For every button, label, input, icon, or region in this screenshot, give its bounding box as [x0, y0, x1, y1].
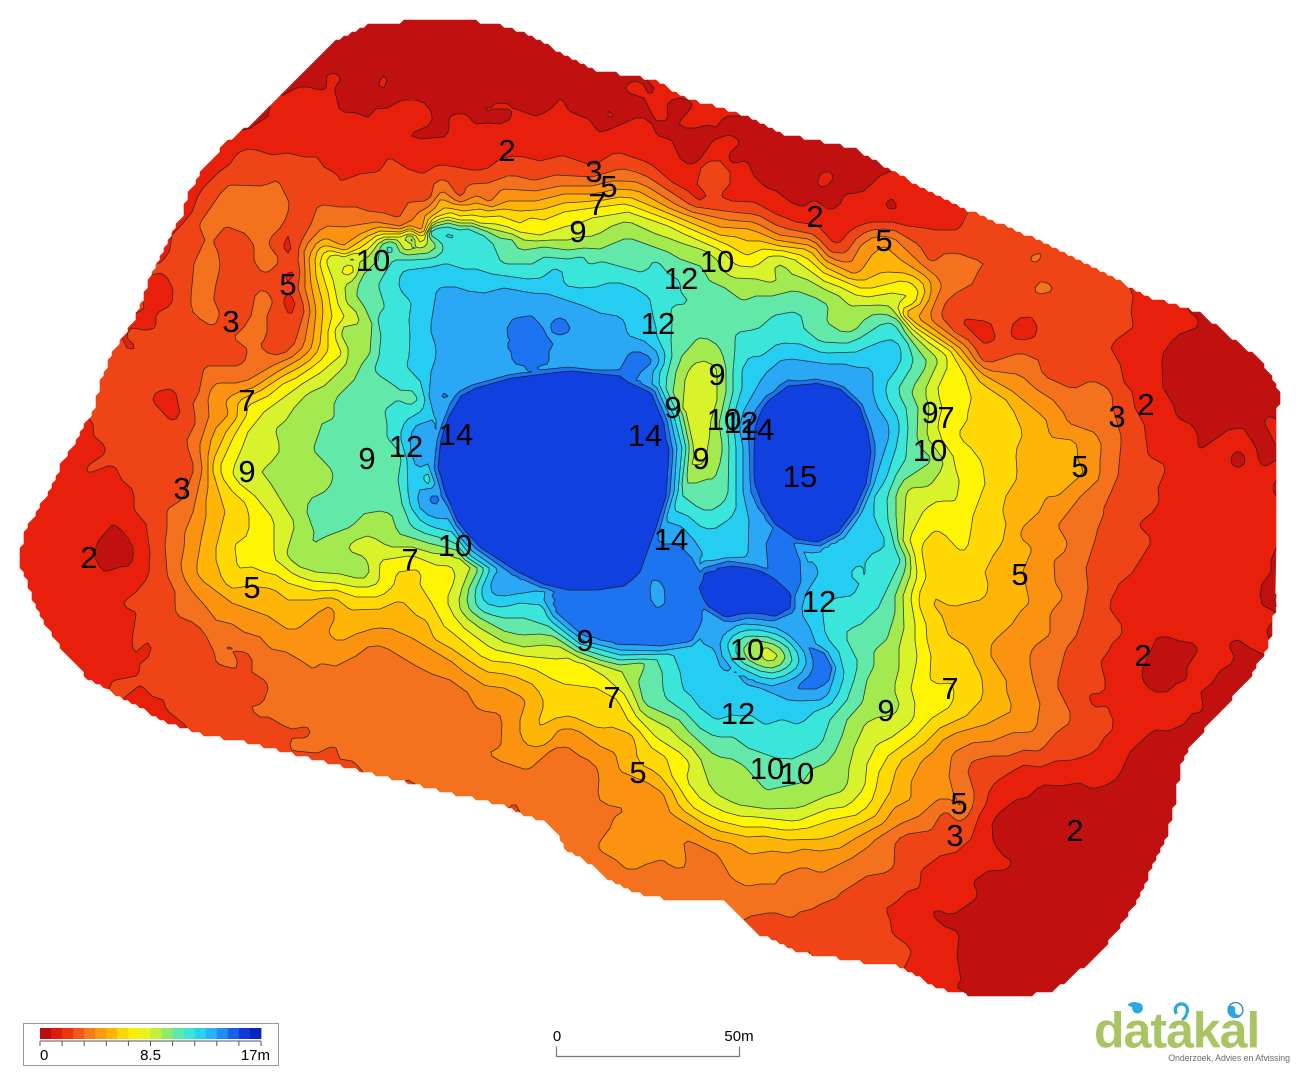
- svg-text:9: 9: [877, 693, 894, 728]
- svg-text:5: 5: [629, 755, 646, 790]
- svg-text:3: 3: [946, 818, 963, 853]
- svg-text:2: 2: [80, 540, 97, 575]
- svg-text:9: 9: [238, 454, 255, 489]
- svg-text:12: 12: [664, 261, 698, 296]
- svg-text:5: 5: [950, 786, 967, 821]
- svg-text:5: 5: [875, 223, 892, 258]
- svg-text:9: 9: [569, 214, 586, 249]
- svg-text:12: 12: [802, 584, 836, 619]
- svg-text:2: 2: [498, 133, 515, 168]
- svg-text:5: 5: [1071, 449, 1088, 484]
- svg-text:14: 14: [439, 417, 473, 452]
- svg-text:7: 7: [401, 542, 418, 577]
- svg-text:2: 2: [1137, 387, 1154, 422]
- svg-text:9: 9: [664, 390, 681, 425]
- svg-text:2: 2: [1134, 638, 1151, 673]
- svg-text:7: 7: [588, 187, 605, 222]
- svg-text:14: 14: [740, 412, 774, 447]
- svg-text:9: 9: [921, 395, 938, 430]
- svg-text:9: 9: [576, 623, 593, 658]
- svg-text:10: 10: [356, 243, 390, 278]
- svg-text:7: 7: [603, 680, 620, 715]
- svg-text:10: 10: [780, 756, 814, 791]
- svg-text:12: 12: [721, 696, 755, 731]
- svg-text:9: 9: [692, 441, 709, 476]
- svg-text:15: 15: [783, 459, 817, 494]
- svg-text:2: 2: [1066, 813, 1083, 848]
- svg-text:2: 2: [806, 199, 823, 234]
- svg-text:9: 9: [358, 441, 375, 476]
- svg-text:12: 12: [641, 306, 675, 341]
- svg-text:7: 7: [937, 400, 954, 435]
- svg-text:10: 10: [730, 632, 764, 667]
- svg-text:5: 5: [243, 570, 260, 605]
- svg-text:12: 12: [389, 429, 423, 464]
- svg-text:8.5: 8.5: [140, 1047, 161, 1064]
- svg-text:3: 3: [1108, 399, 1125, 434]
- svg-text:0: 0: [40, 1047, 48, 1064]
- svg-text:0: 0: [553, 1028, 561, 1045]
- svg-text:14: 14: [654, 522, 688, 557]
- svg-text:Onderzoek, Advies en Afvissing: Onderzoek, Advies en Afvissing: [1168, 1053, 1290, 1063]
- svg-text:5: 5: [1011, 557, 1028, 592]
- svg-text:10: 10: [913, 433, 947, 468]
- svg-text:5: 5: [279, 267, 296, 302]
- svg-text:3: 3: [222, 304, 239, 339]
- svg-text:9: 9: [708, 357, 725, 392]
- svg-text:10: 10: [438, 528, 472, 563]
- svg-text:14: 14: [628, 418, 662, 453]
- svg-text:3: 3: [173, 471, 190, 506]
- svg-text:50m: 50m: [724, 1028, 753, 1045]
- svg-text:10: 10: [700, 244, 734, 279]
- svg-text:17m: 17m: [241, 1047, 270, 1064]
- svg-text:7: 7: [238, 383, 255, 418]
- svg-text:7: 7: [941, 671, 958, 706]
